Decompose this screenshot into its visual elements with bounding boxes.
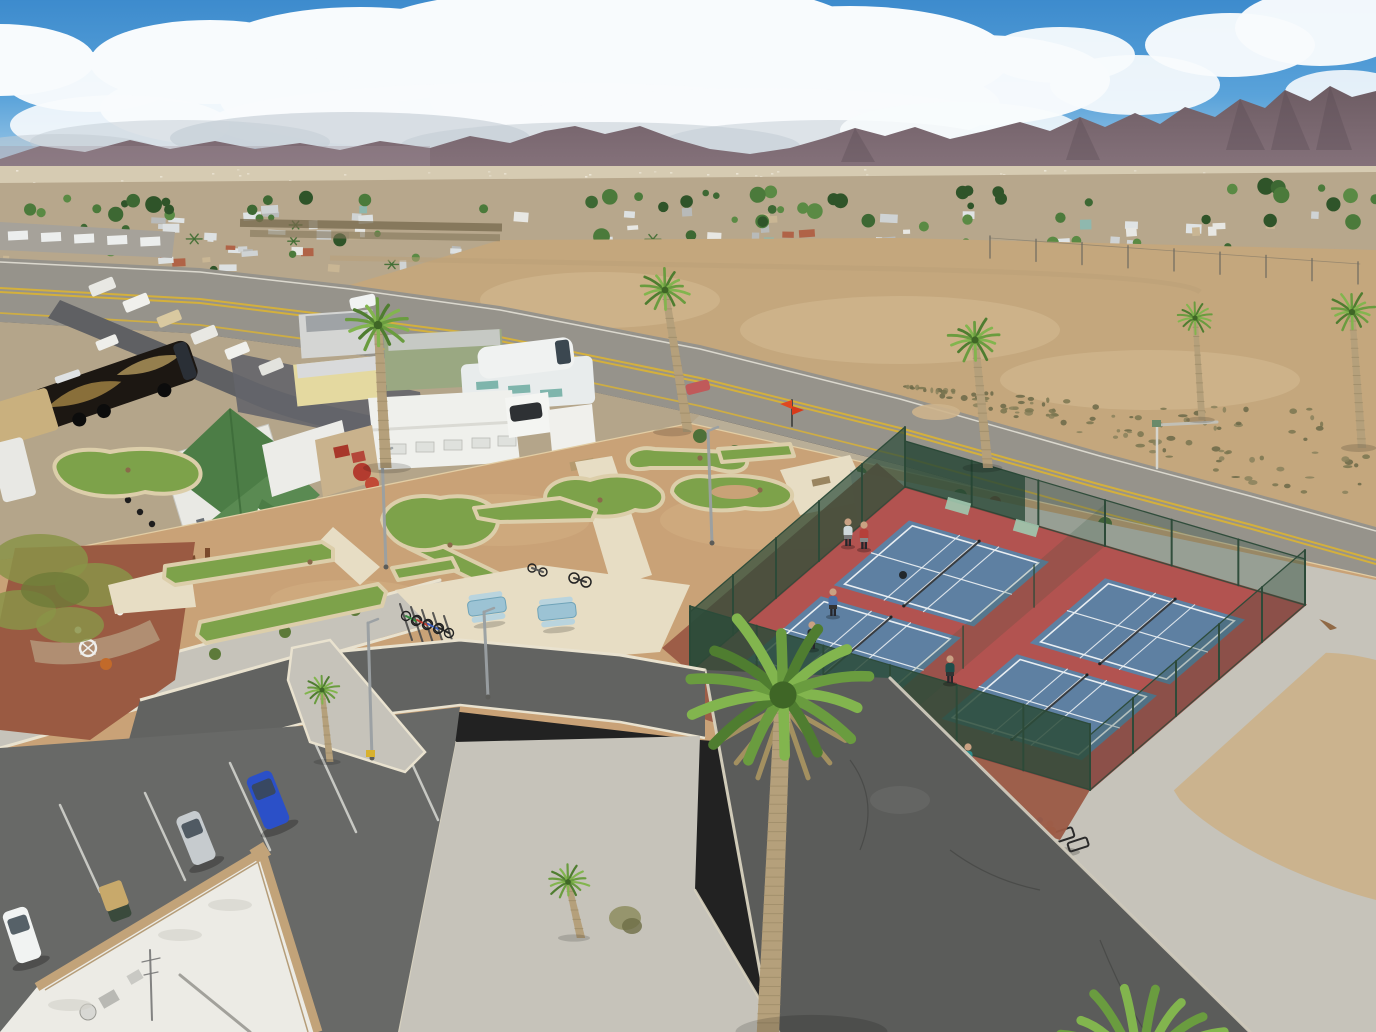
net-post [902,604,905,607]
rv-windshield [555,339,572,365]
scrub [1341,456,1349,462]
golf-obstacle-rock [697,455,702,460]
scrub [1243,407,1248,413]
town-tree [1201,215,1210,224]
parked-rv [107,235,127,245]
town-tree [479,204,488,213]
town-house [682,208,692,217]
speck [212,173,214,175]
palm-crown-center [374,321,383,330]
awning-window [444,440,462,450]
town-house [1208,226,1217,235]
net-post [1098,662,1101,665]
scrub [1289,408,1297,414]
town-house [1126,228,1137,237]
town-tree [1085,198,1093,206]
net-post [889,615,892,618]
parked-rv [74,233,94,243]
roof-stain [208,899,252,911]
wall-shrub [693,429,707,443]
head [860,521,867,528]
town-tree [585,196,598,209]
town-tree [108,207,123,222]
golf-obstacle-rock [125,467,130,472]
speck [1064,170,1066,172]
town-tree [92,204,101,213]
shorts [860,538,868,542]
town-tree [764,186,777,199]
speck [121,180,123,182]
speck [589,174,591,176]
palm-crown-center [662,287,669,294]
parked-rv [8,230,28,240]
golf-obstacle-rock [597,497,602,502]
scrub [1362,454,1370,459]
scrub [971,393,976,397]
pole-base-yellow [366,750,375,757]
scrub [1211,406,1218,409]
palm-shadow [558,934,590,941]
scrub [1030,402,1034,405]
speck [771,173,773,175]
scrub [1042,402,1045,406]
scrub [1086,421,1094,424]
scrub [1301,490,1308,494]
scrub [1000,409,1007,414]
scrub [936,389,939,395]
scrub [1014,415,1019,418]
town-house [1080,219,1092,229]
scrub [1316,426,1324,431]
town-house [880,214,898,223]
scrub [1016,395,1026,398]
scrub [1025,408,1034,412]
scrub [1013,406,1019,410]
scrub [941,390,947,395]
town-house [1192,227,1200,236]
tree-canopy [36,607,104,643]
scrub [1310,415,1314,420]
pole-base [486,695,491,700]
scrub [1015,412,1020,414]
speck [1134,170,1136,172]
bollard [149,521,155,527]
scrub [1092,404,1099,409]
town-tree [1343,188,1358,203]
town-tree [1264,214,1277,227]
golf-obstacle-rock [447,542,452,547]
town-house [627,225,638,230]
town-tree [797,202,808,213]
net-post [1085,673,1088,676]
scrub [1063,399,1070,403]
head [844,518,851,525]
town-house [903,229,910,234]
town-tree [768,205,777,214]
scrub [1288,430,1296,434]
scrub [1249,457,1255,463]
palm-shadow [963,464,1003,473]
aerial-photo [0,0,1376,1032]
scrub [1236,422,1242,426]
town-tree [807,203,823,219]
speck [239,175,241,177]
town-tree [862,214,876,228]
bollard [137,509,143,515]
scrub [1076,431,1082,433]
scrub [1018,401,1025,404]
gravel-wedge [398,736,779,1032]
shorts [946,672,954,676]
town-tree [634,192,643,201]
town-house [359,206,367,213]
scrub [1135,415,1142,420]
golf-obstacle-rock [307,559,312,564]
pole-base [710,541,715,546]
town-house [752,232,759,239]
scrub [1149,450,1157,453]
speck [16,170,18,172]
town-tree [63,195,71,203]
town-tree [962,214,972,224]
awning-window [472,438,490,448]
scrub [1123,433,1128,438]
scrub [1111,415,1115,418]
town-house [204,233,217,241]
sand-patch [1000,350,1300,410]
head [964,743,971,750]
bush [209,648,221,660]
scrub [1260,456,1264,461]
town-tree [702,190,709,197]
head [946,655,953,662]
town-tree [162,198,171,207]
scrub [1312,452,1319,454]
metal-rooster [100,658,112,670]
scrub [1213,468,1219,471]
scrub [1061,420,1067,426]
scrub [1217,427,1222,430]
shadow [826,615,840,620]
parked-rv [41,232,61,242]
town-tree [247,205,257,215]
town-house [226,245,236,250]
speck [160,176,162,178]
speck [1203,172,1205,174]
palm-shadow [314,759,341,765]
bag-on-fence [899,571,907,579]
hole-island [711,485,759,499]
speck [777,171,779,173]
head [829,588,836,595]
pole-base [384,565,389,570]
town-tree [289,251,296,258]
roof-stain [158,929,202,941]
scrub [1276,467,1284,472]
tree-canopy [21,572,89,608]
palm-shadow [653,428,691,437]
scrub [1178,414,1188,417]
town-tree [24,203,36,215]
awning-window [498,436,516,446]
scrub [1163,448,1167,452]
town-tree [967,203,974,210]
scrub [1113,436,1118,439]
scrub [988,407,993,411]
scrub [1028,397,1034,401]
golf-obstacle-rock [757,487,762,492]
scrub [1117,429,1121,432]
scrub [1306,408,1312,411]
town-tree [37,208,46,217]
roof-stain [48,999,92,1011]
palm-shadow [1341,444,1376,452]
road-patch [870,786,930,814]
speck [736,173,738,175]
speck [864,169,866,171]
scrub [917,387,926,389]
scrub [1129,416,1133,418]
scrub [1127,431,1132,433]
town-tree [1318,184,1325,191]
scrub [910,387,915,390]
town-house [624,211,635,218]
scrub [1218,450,1224,453]
town-tree [658,202,668,212]
town-tree [1227,184,1238,195]
town-house [151,217,166,224]
shadow [857,548,871,553]
town-house [172,258,186,266]
shadow [943,682,957,687]
speck [488,171,490,173]
speck [866,174,868,176]
town-tree [995,193,1007,205]
town-tree [758,216,769,227]
speck [707,174,709,176]
town-tree [777,206,784,213]
town-house [261,205,279,214]
street-sign [1152,420,1161,427]
scrub [1166,436,1175,441]
palm-crown-center [320,688,325,693]
scrub [1049,409,1056,413]
scrub [1090,417,1096,421]
scrub [1284,484,1291,489]
scrub [1137,431,1144,437]
town-house [782,231,794,237]
scrub [1358,483,1362,486]
scrub [1305,476,1315,478]
speck [1000,173,1002,175]
palm-shadow [1186,417,1215,423]
scrub [1303,438,1307,441]
scrub [1046,414,1050,417]
scrub [1231,476,1240,478]
scrub [906,385,910,389]
net-post [977,540,980,543]
net-post [1173,597,1176,600]
speck [504,173,506,175]
scrub [1248,480,1257,485]
mini-golf-hole-4 [382,496,498,550]
speck [585,176,587,178]
scrub [1226,450,1232,454]
town-tree [750,187,766,203]
scrub [990,391,993,396]
sand-on-road [912,404,960,420]
speck [237,169,239,171]
town-house [219,264,236,271]
speck [344,174,346,176]
palm-crown-center [565,879,571,885]
scrub [951,389,956,393]
parked-rv [140,236,160,246]
scrub [1272,483,1278,486]
shorts [829,605,837,609]
speck [654,171,656,173]
scrub [1214,426,1217,431]
town-tree [1345,214,1361,230]
speck [247,173,249,175]
scrub [1343,465,1352,468]
shadow [841,545,855,550]
town-tree [1055,213,1065,223]
town-tree [126,194,140,208]
speck [670,172,672,174]
scrub [1342,491,1348,494]
town-house [513,212,528,223]
town-tree [732,217,738,223]
photo-stage [0,0,1376,1032]
town-tree [833,193,848,208]
town-tree [713,192,720,199]
town-tree [963,186,974,197]
town-tree [299,191,313,205]
scrub [930,387,933,393]
scrub [946,396,953,399]
gravel-wedge [398,736,779,1032]
dry-shrub [622,918,642,934]
town-tree [919,222,929,232]
town-tree [1273,187,1289,203]
scrub [1046,398,1049,400]
town-tree [145,196,162,213]
town-tree [1326,197,1340,211]
mini-golf-hole-11 [54,449,200,496]
speck [755,175,757,177]
town-house [328,264,340,272]
palm-crown-center [1192,315,1197,320]
speck [489,175,491,177]
scrub [1354,463,1358,467]
palm-crown-center [769,681,796,708]
town-tree [359,194,372,207]
scrub [1160,408,1167,410]
palm-crown-center [971,336,978,343]
speck [428,172,430,174]
palm-shadow [363,463,411,474]
scrub [1219,456,1225,461]
teal-awning [476,380,499,390]
speck [1044,170,1046,172]
town-tree [680,195,693,208]
speck [639,172,641,174]
town-tree [602,189,618,205]
scrub [1165,456,1173,458]
town-house [1311,211,1319,219]
town-tree [263,195,273,205]
shorts [844,535,852,539]
town-house [163,224,180,233]
scrub [1000,404,1006,409]
scrub [961,395,968,401]
palm-crown-center [1349,309,1355,315]
town-house [799,229,815,238]
sand-patch [740,296,1060,364]
scrub [1223,407,1227,413]
scrub [1186,440,1193,446]
town-house [1110,236,1120,244]
town-house [202,257,210,263]
awning-window [416,442,434,452]
scrub [1135,444,1145,448]
